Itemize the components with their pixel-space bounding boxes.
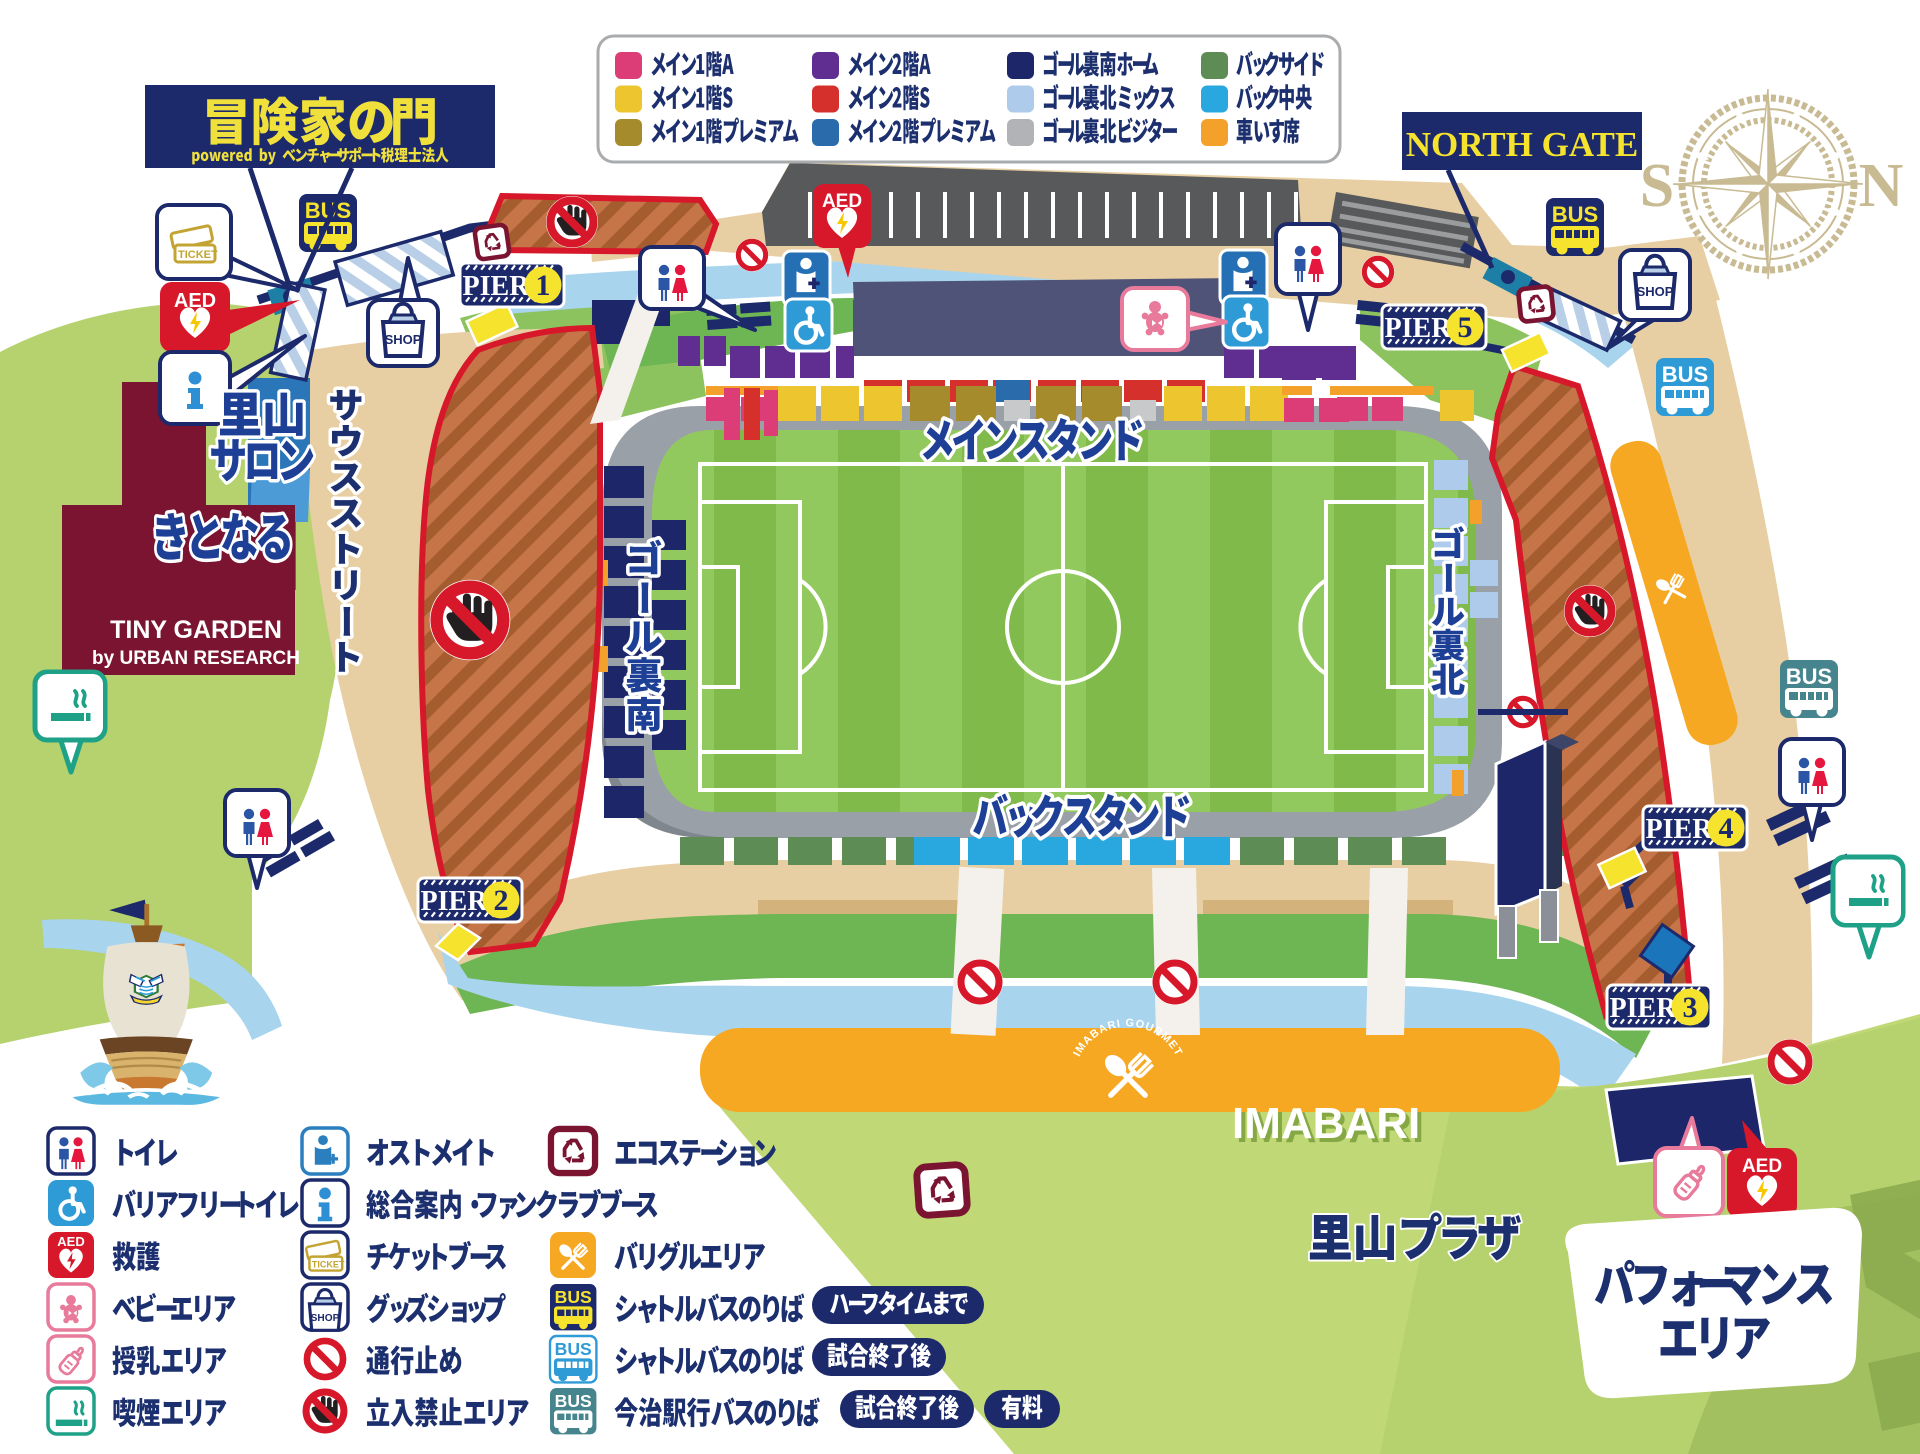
svg-text:BUS: BUS xyxy=(555,1287,592,1307)
svg-text:BUS: BUS xyxy=(555,1339,592,1359)
svg-text:AED: AED xyxy=(822,191,862,212)
svg-text:PIER: PIER xyxy=(1385,313,1453,344)
svg-text:AED: AED xyxy=(57,1234,84,1249)
svg-text:AED: AED xyxy=(174,290,216,312)
svg-text:4: 4 xyxy=(1719,812,1734,845)
svg-text:by URBAN RESEARCH: by URBAN RESEARCH xyxy=(92,648,300,669)
svg-text:N: N xyxy=(1859,152,1904,220)
svg-text:BUS: BUS xyxy=(1662,362,1708,387)
svg-text:PIER: PIER xyxy=(1610,993,1678,1024)
svg-text:S: S xyxy=(1640,152,1674,220)
svg-text:IMABARI: IMABARI xyxy=(1232,1099,1420,1148)
svg-text:3: 3 xyxy=(1683,991,1698,1024)
svg-text:BUS: BUS xyxy=(1786,664,1832,689)
svg-text:TINY GARDEN: TINY GARDEN xyxy=(110,616,282,644)
svg-text:BUS: BUS xyxy=(1552,202,1598,227)
svg-text:2: 2 xyxy=(494,884,509,917)
svg-text:PIER: PIER xyxy=(421,886,489,917)
svg-text:AED: AED xyxy=(1742,1156,1782,1177)
svg-text:1: 1 xyxy=(536,269,551,302)
svg-text:PIER: PIER xyxy=(463,271,531,302)
svg-text:5: 5 xyxy=(1458,311,1473,344)
svg-text:NORTH GATE: NORTH GATE xyxy=(1406,125,1638,164)
svg-text:BUS: BUS xyxy=(555,1391,592,1411)
svg-text:PIER: PIER xyxy=(1646,814,1714,845)
